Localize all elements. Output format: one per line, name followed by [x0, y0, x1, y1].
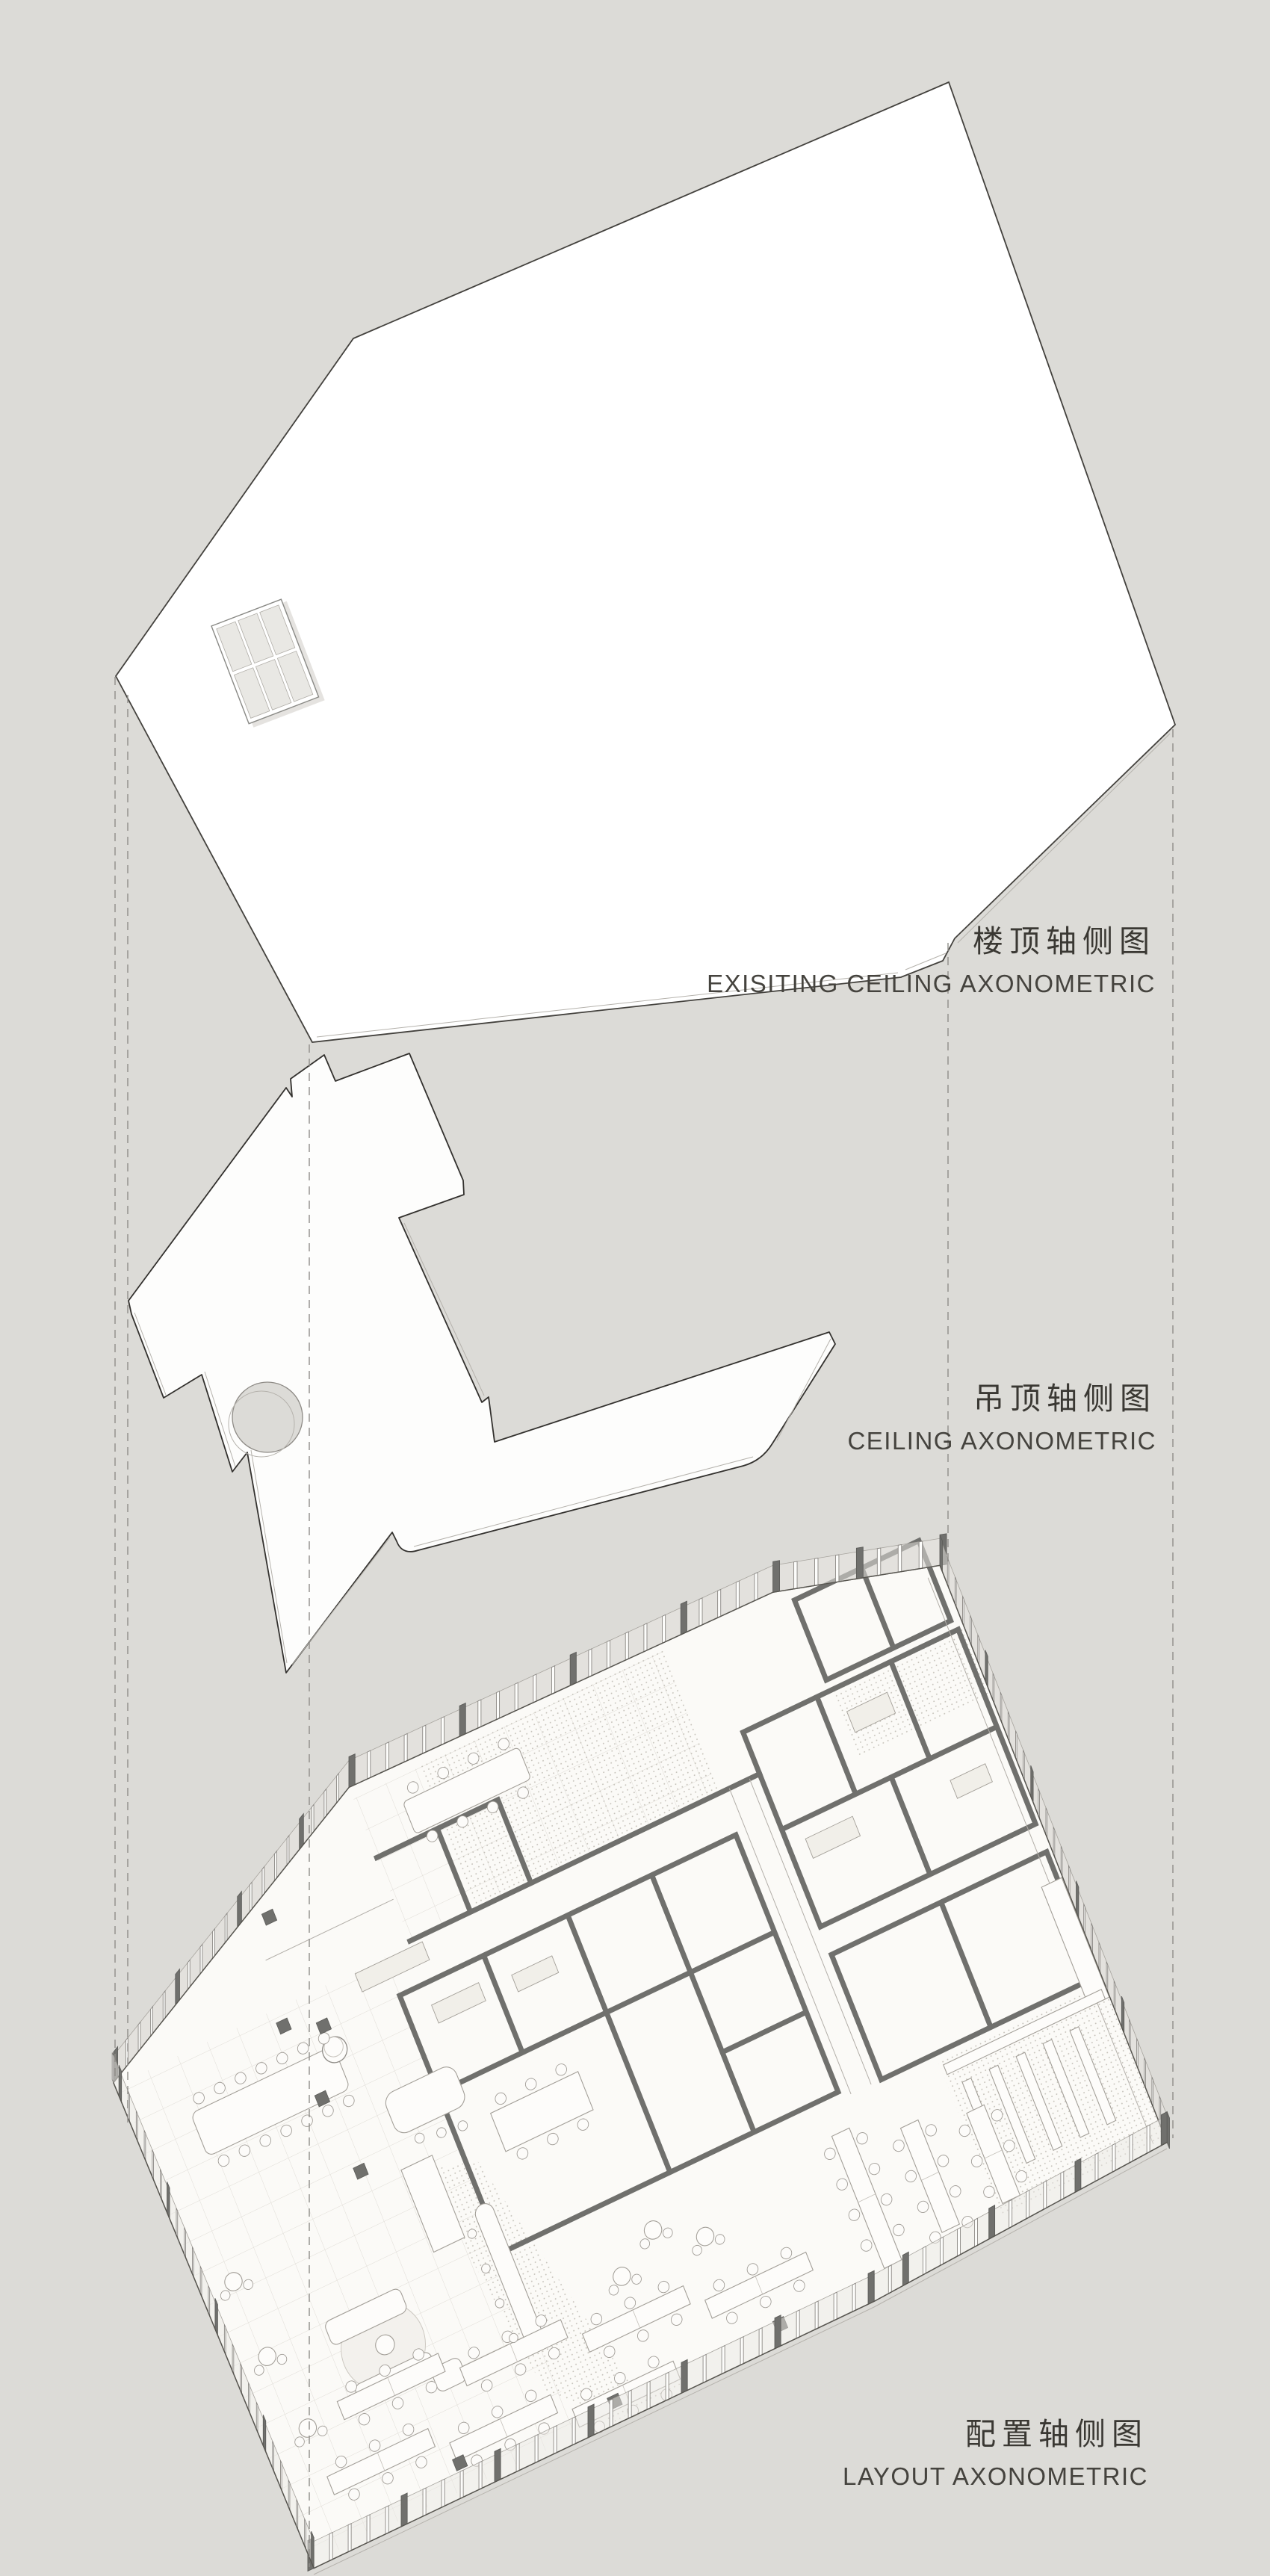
label-layout: 配置轴侧图 LAYOUT AXONOMETRIC [843, 2409, 1148, 2491]
label-ceiling: 吊顶轴侧图 CEILING AXONOMETRIC [847, 1373, 1156, 1455]
diagram-canvas: 楼顶轴侧图 EXISITING CEILING AXONOMETRIC 吊顶轴侧… [0, 0, 1270, 2576]
label-layout-zh: 配置轴侧图 [843, 2409, 1148, 2453]
label-existing-ceiling: 楼顶轴侧图 EXISITING CEILING AXONOMETRIC [707, 916, 1156, 998]
label-existing-ceiling-en: EXISITING CEILING AXONOMETRIC [707, 970, 1156, 998]
ceiling-panel [128, 1053, 835, 1673]
label-ceiling-zh: 吊顶轴侧图 [847, 1373, 1156, 1418]
axonometric-diagram [0, 0, 1270, 2576]
ceiling-layer [128, 1053, 835, 1673]
roof-slab [116, 82, 1175, 1042]
label-existing-ceiling-zh: 楼顶轴侧图 [707, 916, 1156, 961]
label-ceiling-en: CEILING AXONOMETRIC [847, 1427, 1156, 1455]
label-layout-en: LAYOUT AXONOMETRIC [843, 2462, 1148, 2491]
roof-layer [116, 82, 1175, 1042]
